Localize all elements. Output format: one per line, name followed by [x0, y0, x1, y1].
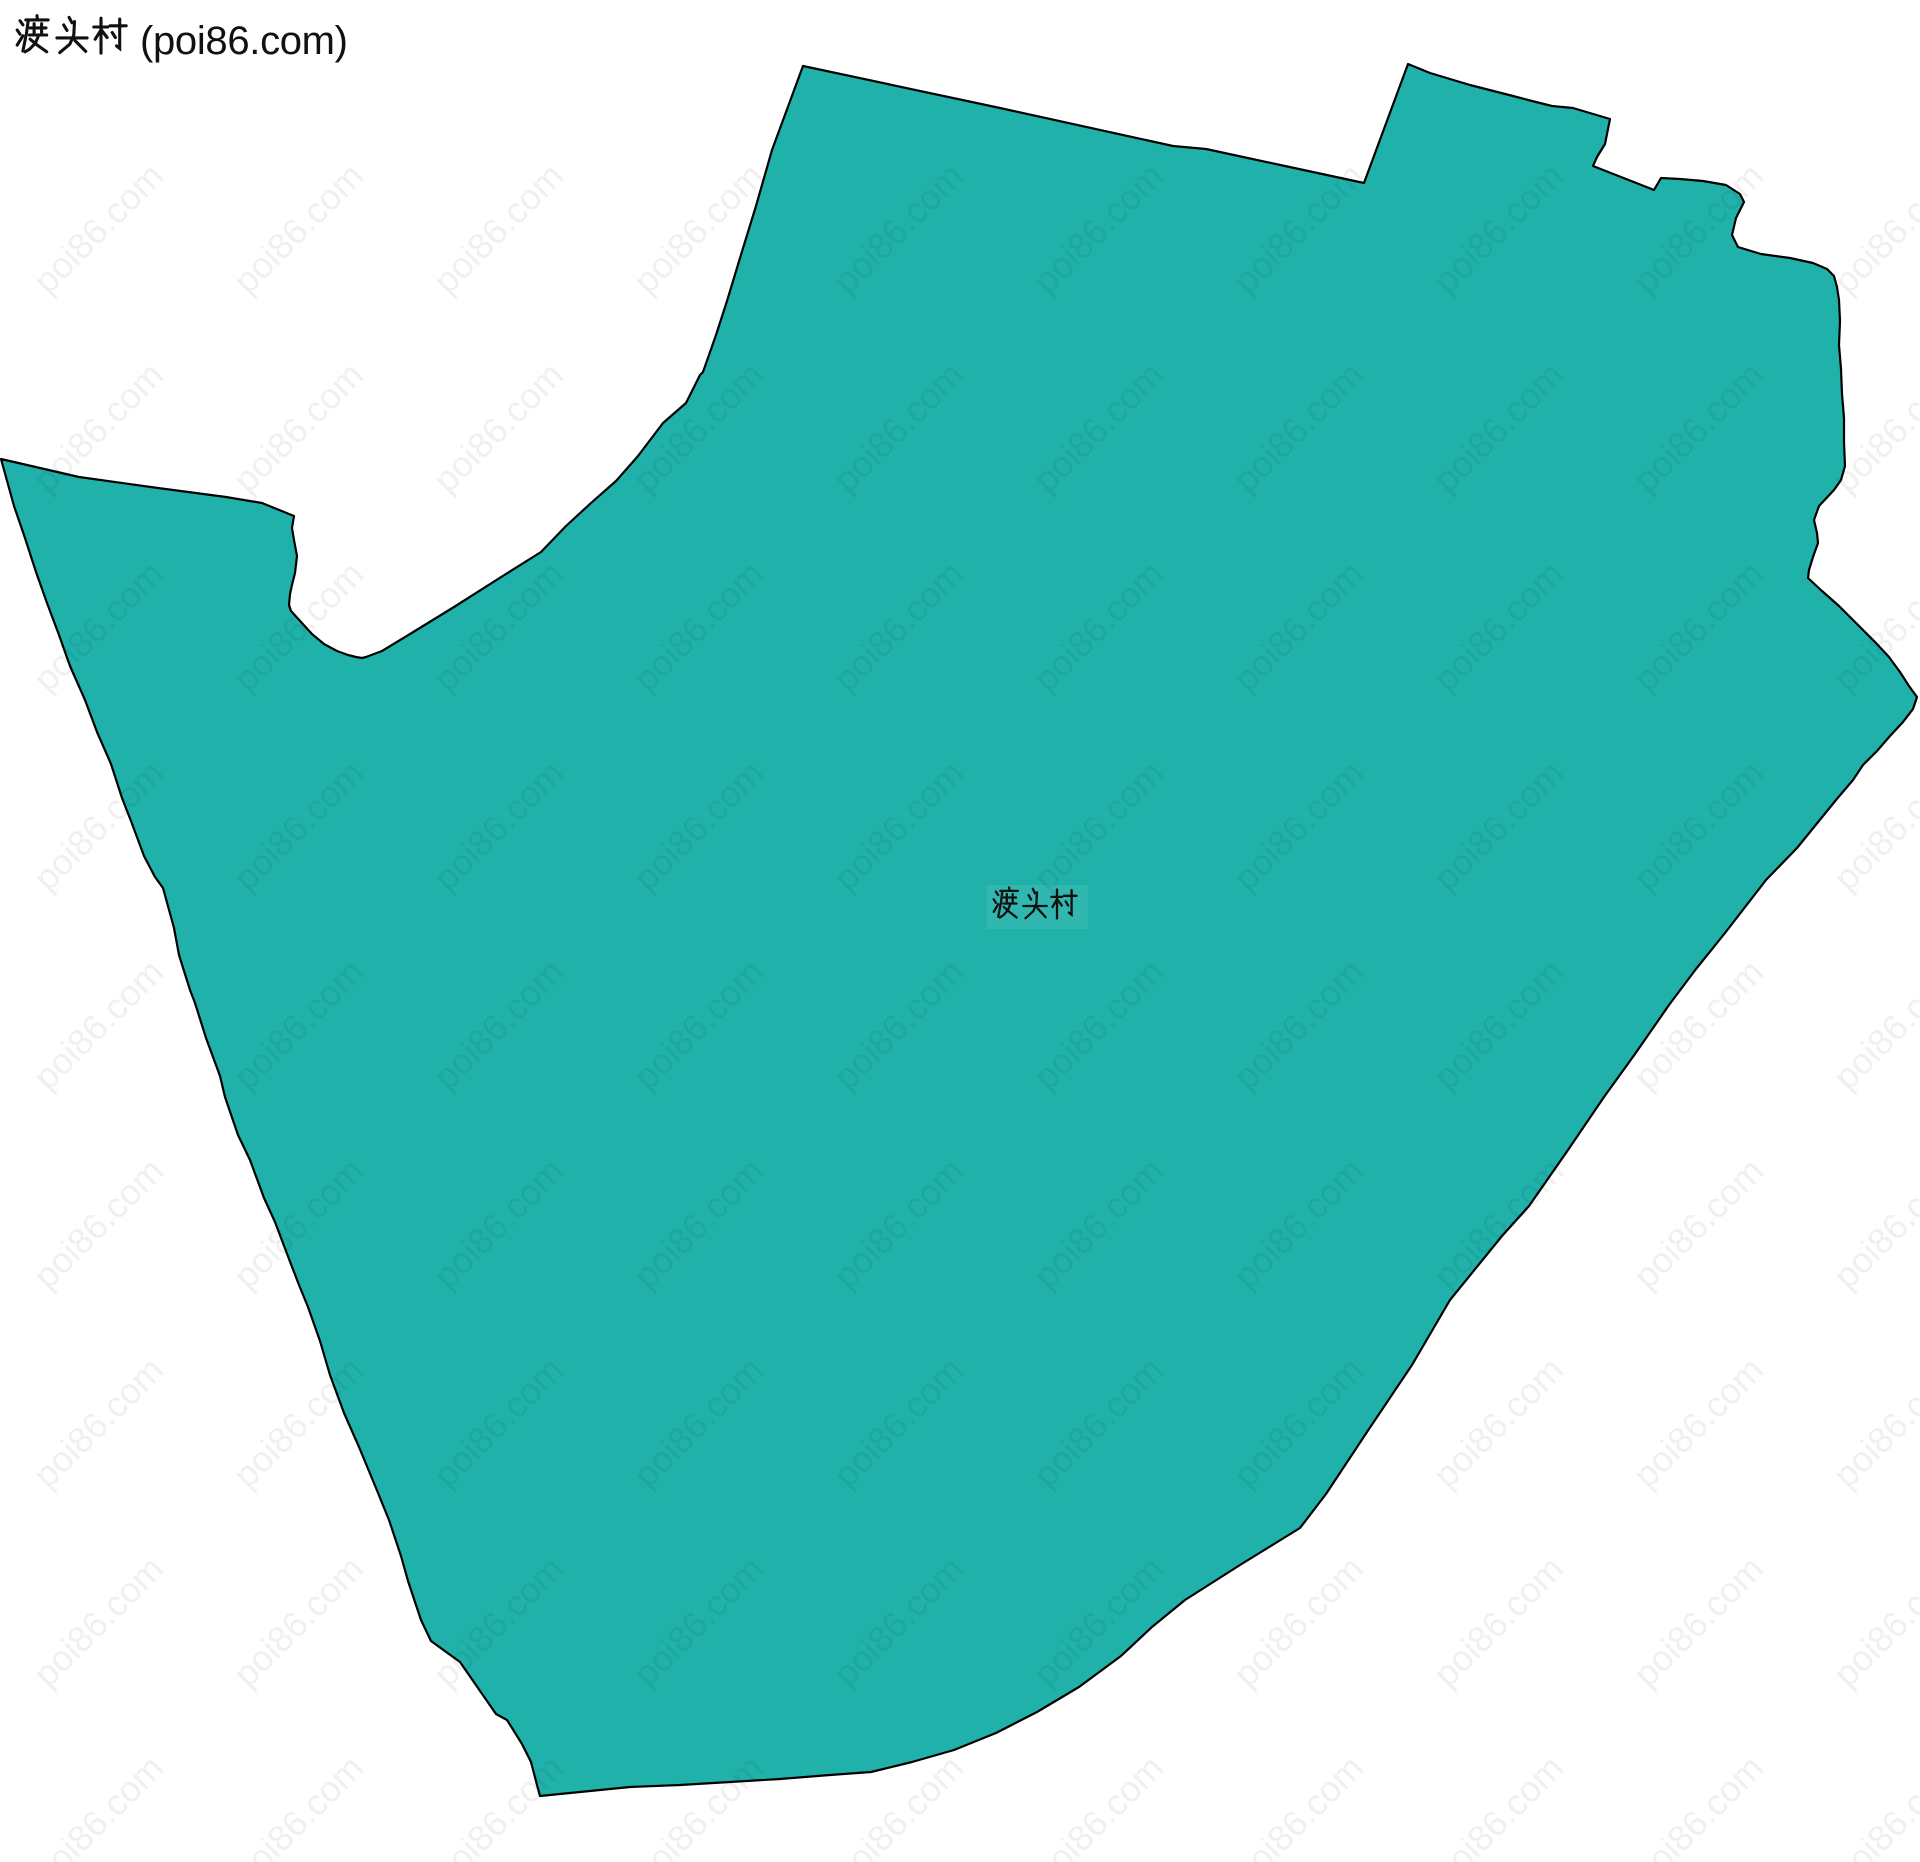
svg-text:poi86.com: poi86.com	[225, 354, 371, 500]
svg-text:poi86.com: poi86.com	[1825, 155, 1920, 301]
svg-text:poi86.com: poi86.com	[225, 155, 371, 301]
svg-text:poi86.com: poi86.com	[1425, 1548, 1571, 1694]
svg-text:poi86.com: poi86.com	[25, 1150, 171, 1296]
svg-text:poi86.com: poi86.com	[25, 155, 171, 301]
svg-text:poi86.com: poi86.com	[25, 354, 171, 500]
svg-text:poi86.com: poi86.com	[1825, 1747, 1920, 1862]
svg-text:poi86.com: poi86.com	[1025, 1747, 1171, 1862]
svg-text:poi86.com: poi86.com	[225, 1548, 371, 1694]
svg-text:poi86.com: poi86.com	[1625, 1548, 1771, 1694]
svg-text:poi86.com: poi86.com	[1425, 1349, 1571, 1495]
svg-text:poi86.com: poi86.com	[25, 951, 171, 1097]
svg-text:poi86.com: poi86.com	[25, 1747, 171, 1862]
svg-text:poi86.com: poi86.com	[1825, 1150, 1920, 1296]
svg-text:poi86.com: poi86.com	[1625, 1150, 1771, 1296]
svg-text:poi86.com: poi86.com	[225, 1747, 371, 1862]
svg-text:poi86.com: poi86.com	[1625, 1349, 1771, 1495]
svg-text:poi86.com: poi86.com	[1825, 1349, 1920, 1495]
svg-text:poi86.com: poi86.com	[1225, 1548, 1371, 1694]
svg-text:(poi86.com): (poi86.com)	[140, 19, 348, 63]
svg-text:poi86.com: poi86.com	[425, 1747, 571, 1862]
svg-text:poi86.com: poi86.com	[1425, 1747, 1571, 1862]
svg-text:poi86.com: poi86.com	[1825, 951, 1920, 1097]
svg-text:poi86.com: poi86.com	[425, 354, 571, 500]
svg-text:poi86.com: poi86.com	[425, 155, 571, 301]
svg-text:poi86.com: poi86.com	[25, 1349, 171, 1495]
svg-text:poi86.com: poi86.com	[25, 1548, 171, 1694]
svg-text:poi86.com: poi86.com	[1825, 1548, 1920, 1694]
svg-text:poi86.com: poi86.com	[1225, 1747, 1371, 1862]
svg-text:poi86.com: poi86.com	[1625, 1747, 1771, 1862]
